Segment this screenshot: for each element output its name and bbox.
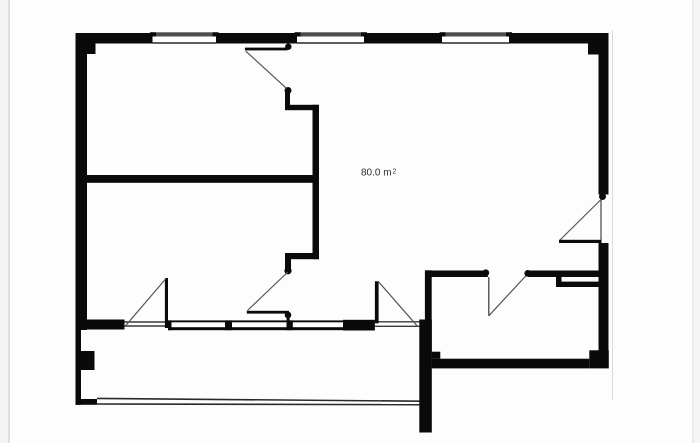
svg-text:2: 2 [393, 169, 397, 176]
svg-text:80.0 m: 80.0 m [361, 168, 392, 179]
